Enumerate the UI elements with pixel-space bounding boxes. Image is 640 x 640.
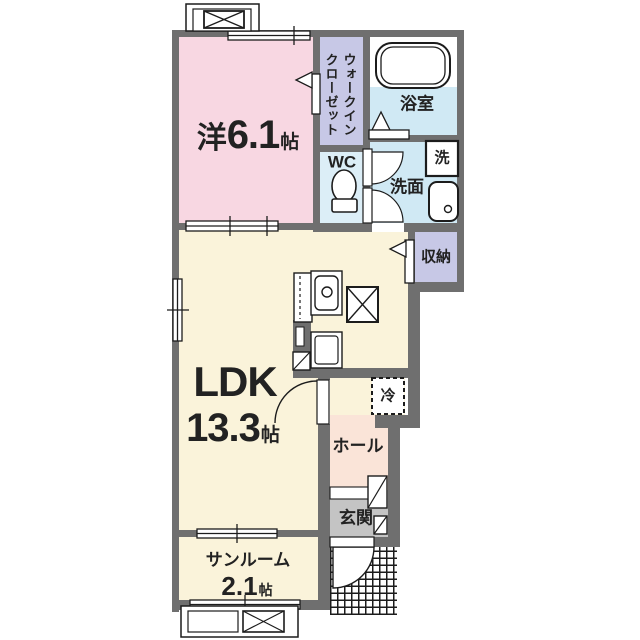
- label-sunroom-size: 2.1帖: [221, 573, 272, 599]
- label-washroom: 洗面: [390, 179, 424, 196]
- label-sunroom: サンルーム: [206, 552, 291, 569]
- label-walk-in-closet-line2: クローゼット: [325, 53, 338, 137]
- label-refrigerator: 冷: [380, 389, 395, 404]
- entrance-step: [330, 487, 372, 499]
- label-storage: 収納: [421, 250, 451, 265]
- label-bedroom-prefix: 洋: [197, 124, 227, 154]
- kitchen-hatch-box: [347, 287, 378, 322]
- bathtub: [376, 43, 450, 88]
- label-ldk: LDK: [193, 361, 276, 403]
- label-washer: 洗: [434, 151, 449, 166]
- kitchen-sink: [315, 276, 338, 310]
- floor-plan-drawing: [0, 0, 640, 640]
- label-hall: ホール: [333, 438, 384, 455]
- label-sunroom-size-number: 2.1: [221, 573, 257, 599]
- label-sunroom-size-unit: 帖: [259, 583, 273, 597]
- entrance-door: [330, 537, 374, 588]
- label-bathroom: 浴室: [400, 96, 434, 113]
- exterior-equipment-box-top: [186, 4, 259, 31]
- label-ldk-size-unit: 帖: [261, 426, 280, 445]
- label-ldk-size: 13.3帖: [186, 408, 280, 448]
- wash-basin: [429, 182, 458, 221]
- label-walk-in-closet-line1: ウォークイン: [343, 53, 356, 137]
- label-bedroom-size: 6.1: [227, 115, 280, 155]
- floor-plan: 洋6.1帖 ウォークイン クローゼット 浴室 WC 洗面 洗 収納 LDK 13…: [0, 0, 640, 640]
- toilet: [332, 170, 357, 212]
- label-bedroom: 洋6.1帖: [197, 115, 300, 155]
- label-wc: WC: [328, 154, 356, 171]
- label-entrance: 玄関: [339, 510, 373, 527]
- label-bedroom-unit: 帖: [280, 133, 299, 152]
- label-ldk-size-number: 13.3: [186, 408, 260, 448]
- terrace: [181, 606, 298, 637]
